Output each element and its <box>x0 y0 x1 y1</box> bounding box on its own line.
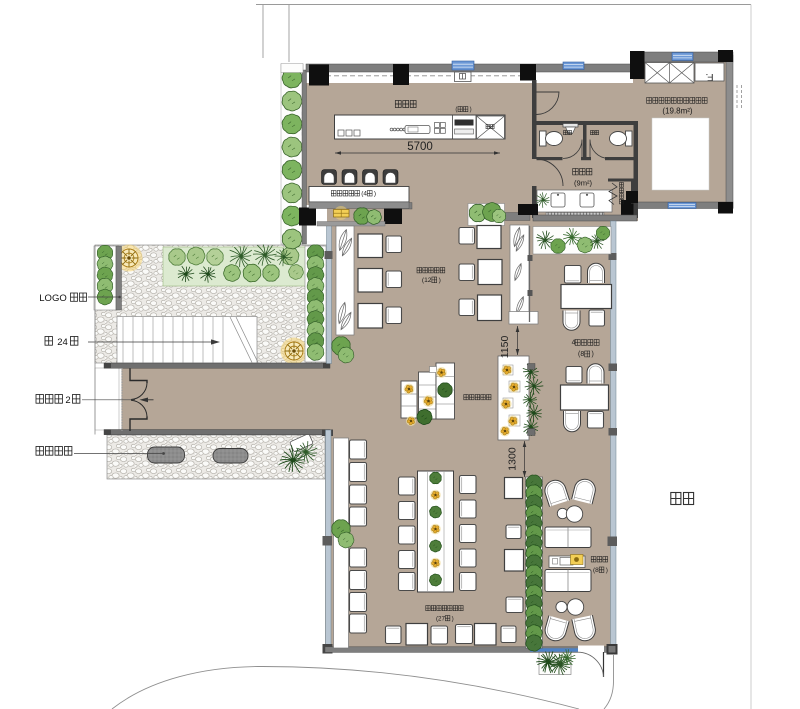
svg-text:(12: (12 <box>422 277 432 284</box>
svg-text:): ) <box>439 277 441 284</box>
svg-text:1300: 1300 <box>507 447 519 471</box>
svg-text:): ) <box>374 190 376 197</box>
svg-text:5700: 5700 <box>407 141 433 153</box>
svg-text:LOGO: LOGO <box>39 293 66 304</box>
svg-text:(19.8m²): (19.8m²) <box>662 107 693 116</box>
svg-text:(4: (4 <box>361 190 367 197</box>
svg-text:2: 2 <box>65 395 70 406</box>
svg-text:24: 24 <box>57 337 68 348</box>
svg-text:): ) <box>452 615 454 622</box>
svg-text:(: ( <box>455 107 457 113</box>
svg-text:): ) <box>470 107 472 113</box>
svg-text:(9m²): (9m²) <box>574 179 593 188</box>
svg-text:1150: 1150 <box>499 336 511 359</box>
svg-text:F.: F. <box>705 71 713 83</box>
svg-text:(8: (8 <box>593 567 599 574</box>
svg-text:(27: (27 <box>436 615 446 622</box>
svg-text:(8: (8 <box>578 351 584 358</box>
svg-text:): ) <box>606 567 608 574</box>
svg-text:): ) <box>592 351 594 358</box>
